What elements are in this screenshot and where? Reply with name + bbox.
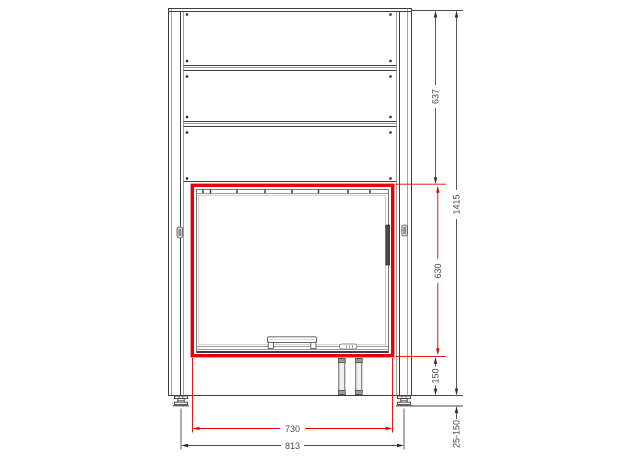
front-elevation-drawing: 637 630 150 1415 25-150 730 — [0, 0, 624, 460]
dim-label-730: 730 — [285, 424, 300, 434]
door-outline — [197, 190, 389, 353]
dimension-opening-width: 730 — [193, 424, 393, 434]
dimension-base-height: 150 — [430, 357, 441, 396]
dimension-opening-height: 630 — [432, 186, 443, 356]
dimension-upper-body-height: 637 — [430, 11, 441, 185]
dimension-foot-adjust-range: 25-150 — [452, 406, 462, 448]
upper-panels — [184, 13, 397, 181]
dimension-total-height: 1415 — [451, 11, 462, 396]
leveling-foot-left — [173, 396, 189, 406]
dim-label-150: 150 — [431, 368, 441, 383]
panel-screws — [186, 13, 392, 179]
dim-label-1415: 1415 — [452, 194, 462, 214]
dim-label-25-150: 25-150 — [452, 420, 462, 448]
dim-label-637: 637 — [431, 89, 441, 104]
plinth-channel — [338, 359, 362, 395]
side-latch-left — [177, 227, 183, 238]
technical-drawing-canvas: 637 630 150 1415 25-150 730 — [0, 0, 624, 460]
dimension-overall-width: 813 — [181, 441, 404, 451]
door-handle — [386, 225, 390, 265]
dim-label-813: 813 — [285, 441, 300, 451]
dim-label-630: 630 — [433, 263, 443, 278]
door-assembly — [197, 190, 390, 353]
air-vent-detail — [340, 344, 358, 349]
leveling-foot-right — [396, 396, 412, 406]
side-latch-right — [402, 225, 408, 236]
